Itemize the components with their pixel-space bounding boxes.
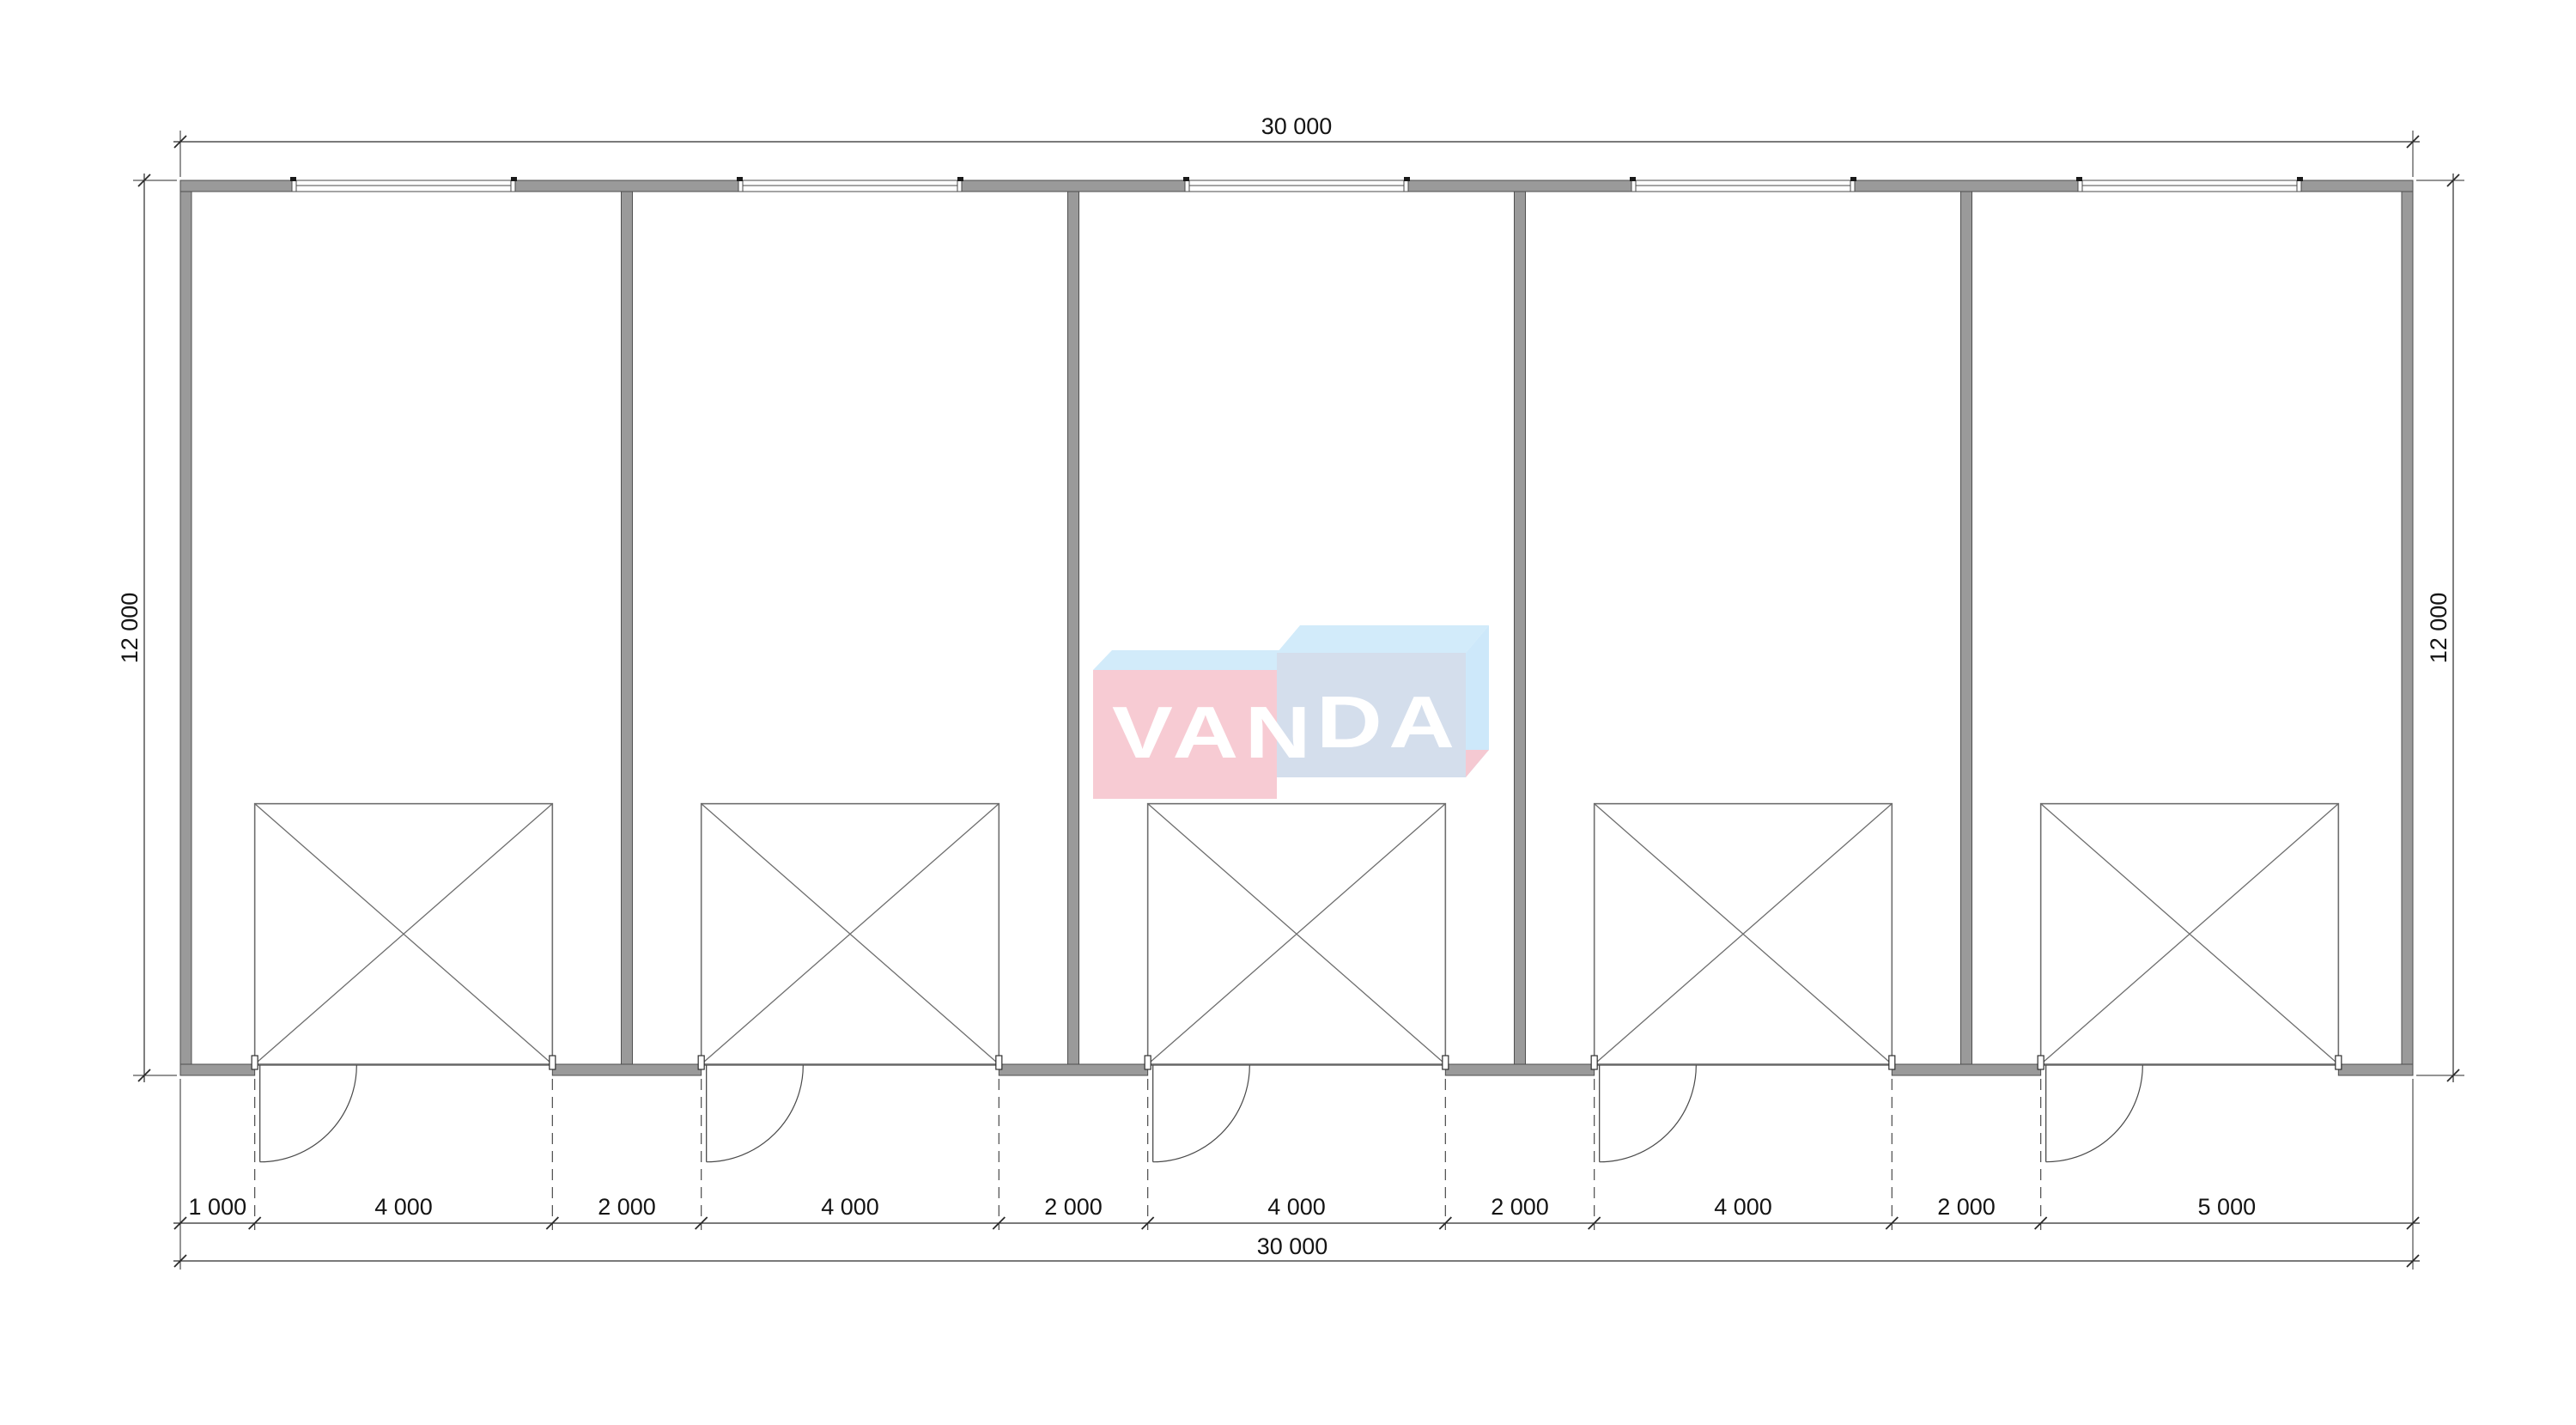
right-wall [2402, 180, 2413, 1075]
door-jamb-marker [2336, 1056, 2342, 1069]
walls [180, 180, 2413, 1075]
top-wall-segment [1855, 180, 2078, 192]
top-wall-segment [180, 180, 292, 192]
window-end-cap [2297, 177, 2303, 181]
bottom-wall-segment [552, 1064, 701, 1075]
window-end-cap [1850, 177, 1856, 181]
dimension-label-segment: 2 000 [1937, 1196, 1996, 1219]
dimension-label-left: 12 000 [118, 542, 142, 714]
garage-unit-5 [2038, 804, 2342, 1162]
bottom-wall-segment [999, 1064, 1147, 1075]
top-wall-segment [1408, 180, 1631, 192]
partition-wall-1 [622, 182, 633, 1074]
partition-wall-4 [1961, 182, 1972, 1074]
garage-unit-1 [252, 804, 556, 1162]
door-jamb-marker [2038, 1056, 2044, 1069]
dimension-label-segment: 4 000 [374, 1196, 433, 1219]
window-end-cap [290, 177, 296, 181]
window-end-cap [1183, 177, 1189, 181]
door-jamb-marker [252, 1056, 258, 1069]
door-swing-arc [2046, 1065, 2143, 1162]
door-jamb-marker [1145, 1056, 1151, 1069]
window-end-cap [1630, 177, 1636, 181]
garage-zone-box [1148, 804, 1446, 1064]
garage-zone-box [1595, 804, 1893, 1064]
garage-zone-box [2041, 804, 2339, 1064]
window-end-cap [1404, 177, 1410, 181]
watermark-text-da: DA [1316, 686, 1461, 759]
window-end-cap [2076, 177, 2082, 181]
dimension-label-segment: 2 000 [1044, 1196, 1103, 1219]
dimension-label-right: 12 000 [2427, 542, 2451, 714]
door-jamb-marker [698, 1056, 704, 1069]
garage-unit-2 [698, 804, 1002, 1162]
garage-unit-4 [1591, 804, 1895, 1162]
dimension-label-bottom-overall: 30 000 [1163, 1234, 1421, 1258]
window-5 [2076, 177, 2303, 192]
window-end-cap [737, 177, 743, 181]
left-wall [180, 180, 191, 1075]
door-jamb-marker [1889, 1056, 1895, 1069]
dimension-label-segment: 1 000 [189, 1196, 247, 1219]
door-jamb-marker [996, 1056, 1002, 1069]
door-swing-arc [1153, 1065, 1250, 1162]
window-4 [1630, 177, 1856, 192]
door-swing-arc [1600, 1065, 1697, 1162]
bottom-wall-segment [1892, 1064, 2040, 1075]
watermark-text-van: VAN [1112, 697, 1317, 770]
partition-wall-3 [1515, 182, 1526, 1074]
bottom-wall-segment [180, 1064, 255, 1075]
dimension-label-segment: 2 000 [598, 1196, 656, 1219]
dimension-label-top-overall: 30 000 [1168, 114, 1425, 138]
dimension-label-segment: 4 000 [1267, 1196, 1326, 1219]
dimension-label-segment: 5 000 [2198, 1196, 2257, 1219]
window-end-cap [957, 177, 963, 181]
top-wall-segment [515, 180, 738, 192]
garage-units [252, 804, 2342, 1162]
dimension-label-segment: 4 000 [821, 1196, 879, 1219]
door-jamb-marker [1443, 1056, 1449, 1069]
window-1 [290, 177, 517, 192]
partition-wall-2 [1068, 182, 1079, 1074]
top-wall-segment [962, 180, 1185, 192]
top-wall-segment [2301, 180, 2413, 192]
logo-left-box-top [1093, 650, 1296, 670]
dimension-label-segment: 4 000 [1714, 1196, 1772, 1219]
dimension-label-segment: 2 000 [1491, 1196, 1549, 1219]
window-2 [737, 177, 963, 192]
garage-zone-box [702, 804, 999, 1064]
door-jamb-marker [1591, 1056, 1597, 1069]
floor-plan-canvas: VAN DA 30 000 30 000 12 000 12 000 1 000… [0, 0, 2576, 1425]
bottom-wall-segment [1445, 1064, 1594, 1075]
logo-right-box-top [1277, 625, 1489, 653]
window-end-cap [511, 177, 517, 181]
door-swing-arc [260, 1065, 357, 1162]
garage-zone-box [255, 804, 553, 1064]
garage-unit-3 [1145, 804, 1449, 1162]
bottom-wall-segment [2338, 1064, 2413, 1075]
door-swing-arc [707, 1065, 804, 1162]
window-3 [1183, 177, 1410, 192]
door-jamb-marker [550, 1056, 556, 1069]
